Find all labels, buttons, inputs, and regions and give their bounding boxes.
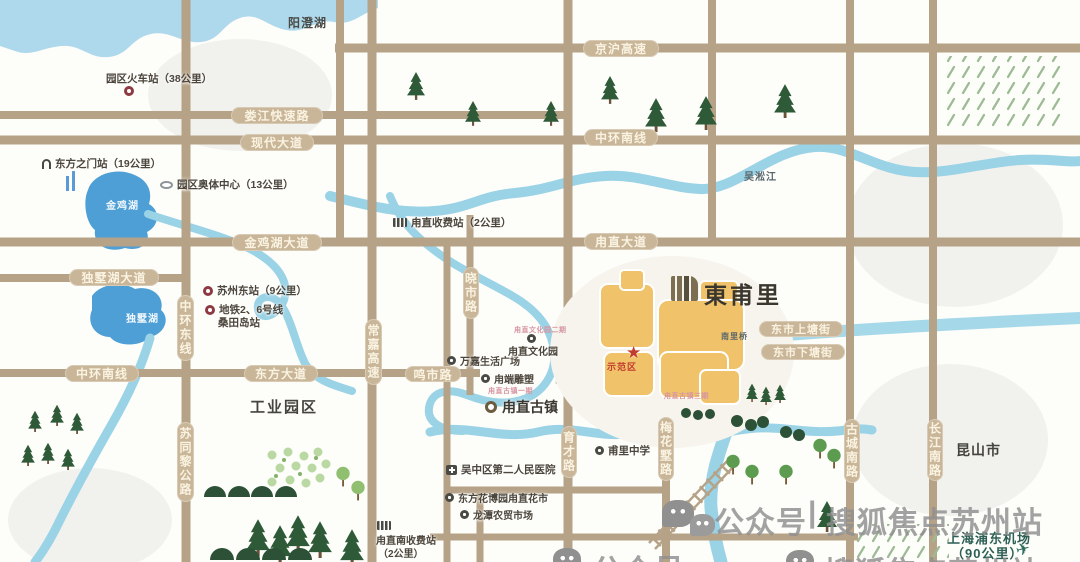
road-pill-changjiang-south-rd: 长江南路	[927, 419, 943, 481]
project-logo-icon	[671, 276, 698, 301]
poi-sculpture-label: 甪端雕塑	[494, 371, 534, 386]
watermark-prefix: 公众号	[714, 498, 807, 542]
area-label-kunshan: 昆山市	[956, 440, 1001, 460]
ancient-town-icon	[485, 401, 497, 413]
school-icon	[595, 446, 604, 455]
poi-metro-station-label: 桑田岛站	[218, 315, 260, 330]
road-pill-gucheng-south-rd: 古城南路	[844, 419, 860, 483]
poi-suzhou-east-station: 苏州东站（9公里）	[203, 283, 307, 298]
poi-train-label: 园区火车站（38公里）	[106, 71, 212, 86]
road-pill-yucai-rd: 育才路	[561, 426, 577, 478]
poi-sudong-label: 苏州东站（9公里）	[217, 283, 307, 298]
area-label-industrial-park: 工业园区	[250, 396, 318, 417]
metro-icon	[203, 286, 213, 296]
lake-label-yangchenghu: 阳澄湖	[288, 14, 327, 31]
river-label-wusongjiang: 吴淞江	[744, 168, 777, 183]
phase-label-culture-park: 甪直文化园二期	[514, 325, 567, 335]
road-pill-xiaoshi-rd: 晓市路	[463, 267, 479, 319]
poi-culture-park: 甪直文化园	[508, 343, 558, 358]
road-pill-zhonghuan-east: 中环东线	[177, 295, 194, 361]
poi-farm-market: 龙潭农贸市场	[460, 507, 533, 522]
stadium-icon	[160, 181, 173, 189]
watermark-divider: |	[808, 496, 817, 530]
poi-gate-label: 东方之门站（19公里）	[55, 156, 161, 171]
road-pill-jinjihu-ave: 金鸡湖大道	[232, 234, 322, 251]
hospital-icon	[446, 465, 457, 475]
watermark-name: 搜狐焦点苏州站	[826, 498, 1043, 542]
poi-flower-label: 东方花博园甪直花市	[458, 490, 548, 505]
lake-label-jinjihu: 金鸡湖	[106, 197, 139, 212]
road-pill-changjia-expwy: 常嘉高速	[365, 319, 382, 385]
road-pill-mingshi-rd: 鸣市路	[405, 366, 461, 382]
toll-gate-icon	[377, 521, 391, 530]
phase-label-town-3: 甪直古镇三期	[664, 391, 709, 401]
project-star-label: 示范区	[607, 360, 637, 373]
market-icon	[460, 510, 469, 519]
river-label-nanliqiao: 南里桥	[721, 331, 748, 342]
toll-gate-icon	[393, 218, 407, 227]
poi-sports-label: 园区奥体中心（13公里）	[177, 177, 294, 192]
park-icon	[527, 334, 536, 343]
road-pill-xiandai-ave: 现代大道	[240, 134, 314, 151]
poi-town-label: 甪直古镇	[502, 397, 558, 417]
poi-luzhi-toll-gate: 甪直收费站（2公里）	[393, 215, 511, 230]
poi-toll-label: 甪直收费站（2公里）	[411, 215, 511, 230]
sculpture-icon	[481, 374, 490, 383]
road-pill-dongfang-ave: 东方大道	[244, 365, 318, 382]
poi-toll-south-dist: （2公里）	[378, 545, 424, 560]
project-star-icon: ★	[626, 344, 641, 361]
road-pill-meihuashu-rd: 梅花墅路	[658, 417, 674, 481]
poi-luduan-sculpture: 甪端雕塑	[481, 371, 534, 386]
poi-luzhi-south-toll-dist: （2公里）	[378, 545, 424, 560]
road-pill-luzhi-ave: 甪直大道	[584, 233, 658, 250]
poi-market-label: 龙潭农贸市场	[473, 507, 533, 522]
road-pill-zhonghuan-south-west: 中环南线	[65, 365, 139, 382]
watermark-prefix-partial: 公众号	[592, 546, 685, 562]
lake-label-dushuhu: 独墅湖	[126, 310, 159, 325]
street-pill-dongshi-xiatang: 东市下塘街	[761, 344, 845, 360]
wechat-icon	[690, 514, 715, 536]
street-pill-dongshi-shangtang: 东市上塘街	[759, 321, 843, 337]
poi-school-label: 甫里中学	[608, 443, 650, 458]
poi-luzhi-ancient-town: 甪直古镇	[485, 397, 558, 417]
wechat-icon	[786, 550, 814, 562]
poi-flower-market: 东方花博园甪直花市	[445, 490, 548, 505]
metro-icon	[205, 305, 215, 315]
flower-icon	[445, 493, 454, 502]
road-pill-loujiang-expwy: 娄江快速路	[231, 107, 323, 124]
mall-icon	[447, 356, 456, 365]
poi-sports-center: 园区奥体中心（13公里）	[160, 177, 294, 192]
poi-culture-label: 甪直文化园	[508, 343, 558, 358]
road-pill-sutongli-hwy: 苏同黎公路	[177, 422, 194, 502]
gate-icon	[42, 159, 51, 169]
road-pill-jinghu-expwy: 京沪高速	[583, 40, 659, 57]
watermark-name-partial: 搜狐焦点苏州站	[824, 548, 1041, 562]
poi-fuli-school: 甫里中学	[595, 443, 650, 458]
metro-icon	[124, 86, 134, 96]
poi-gate-of-orient-station: 东方之门站（19公里）	[42, 156, 161, 171]
poi-hospital-label: 吴中区第二人民医院	[461, 462, 556, 477]
poi-hospital: 吴中区第二人民医院	[446, 462, 556, 477]
phase-label-town-1: 甪直古镇一期	[488, 386, 533, 396]
poi-sangtiandao-station: 桑田岛站	[218, 315, 260, 330]
road-pill-dushuhu-ave: 独墅湖大道	[69, 269, 159, 286]
poi-yuanqu-train-station: 园区火车站（38公里）	[106, 71, 212, 86]
wechat-icon	[553, 548, 581, 562]
road-pill-zhonghuan-south-east: 中环南线	[584, 129, 658, 146]
project-logo-title: 東甫里	[704, 276, 782, 310]
location-map: 阳澄湖 金鸡湖 独墅湖 吴淞江 南里桥 工业园区 昆山市 京沪高速 娄江快速路 …	[0, 0, 1080, 562]
